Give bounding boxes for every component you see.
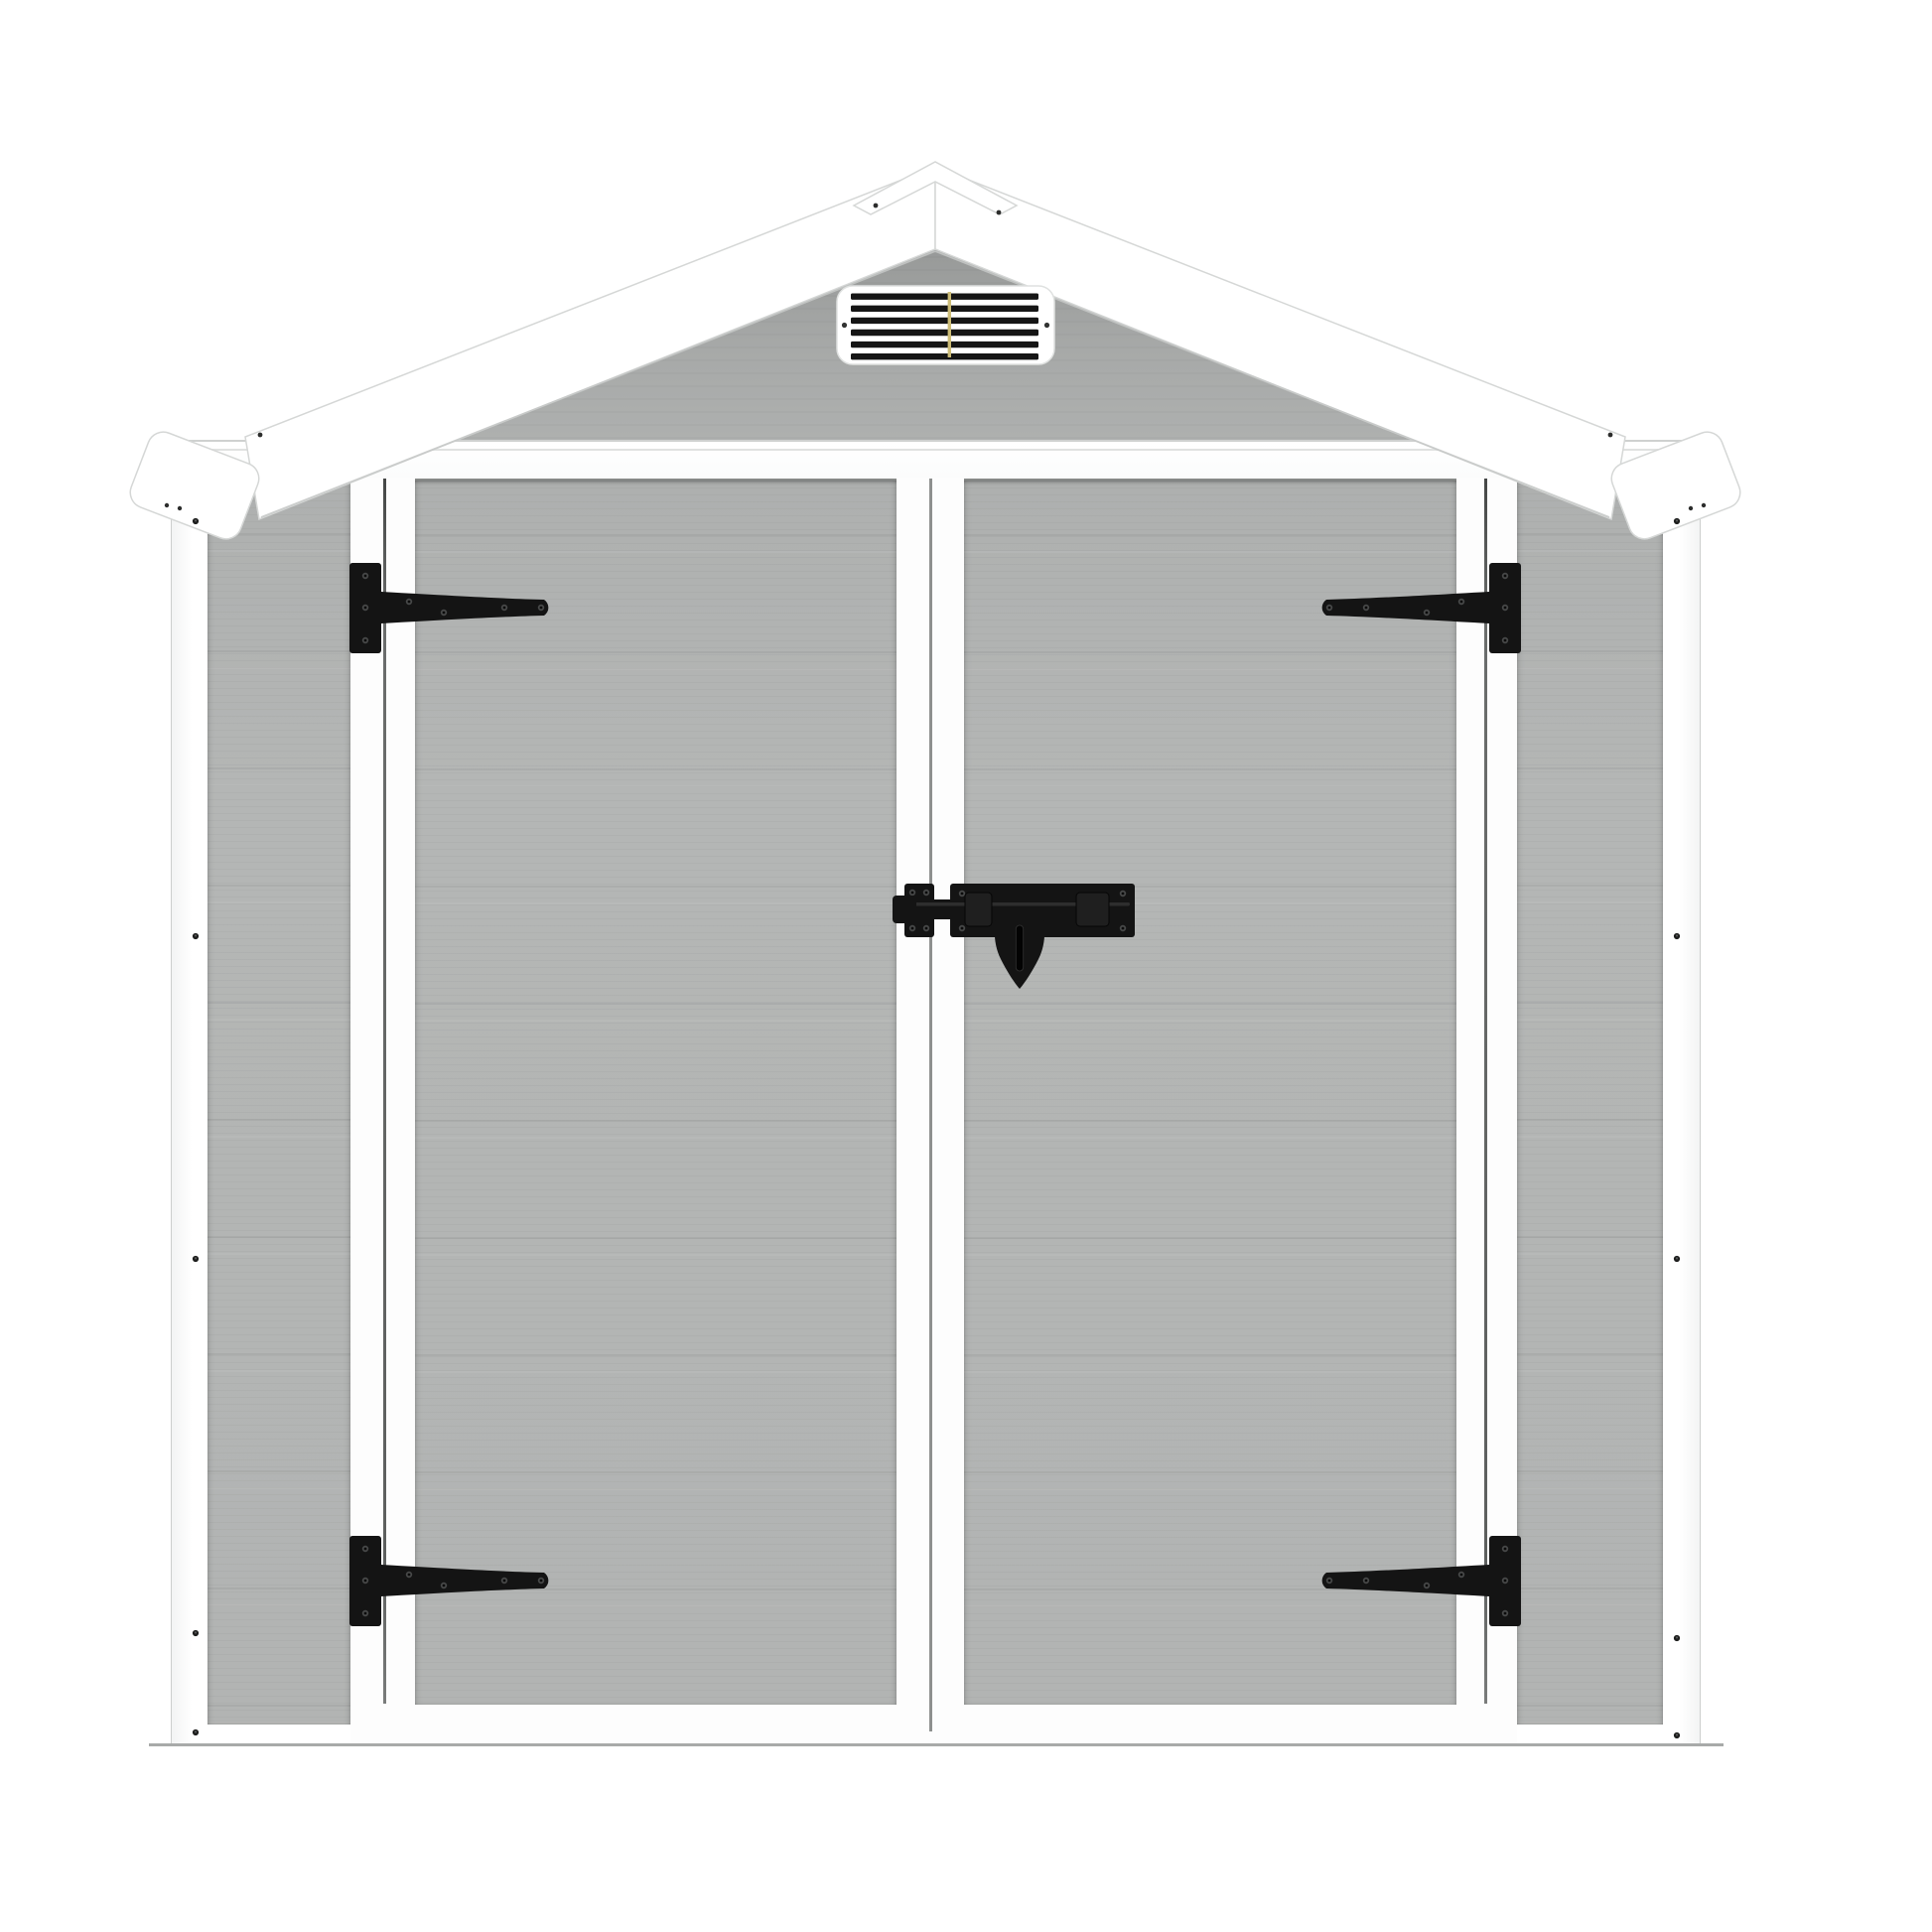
vent-louver xyxy=(851,306,1038,312)
wall-header-band xyxy=(167,440,1702,481)
double-door-bay xyxy=(350,478,1517,1745)
door-hinge-gap-right xyxy=(1484,479,1487,1704)
shed-product-photo xyxy=(0,0,1932,1932)
door-panel-right xyxy=(964,479,1456,1705)
ridge-cap xyxy=(854,162,1017,214)
vent-screw-left xyxy=(842,323,847,328)
vent-screw-right xyxy=(1044,323,1049,328)
vent-louver xyxy=(851,330,1038,336)
gable-vent xyxy=(837,286,1054,364)
door-panel-left xyxy=(415,479,897,1705)
vent-louver xyxy=(851,353,1038,359)
vent-louvers xyxy=(851,294,1038,360)
corner-trim-left xyxy=(171,478,208,1745)
door-center-seam xyxy=(929,479,932,1731)
side-wall-panel-right xyxy=(1517,478,1663,1725)
corner-trim-right xyxy=(1663,478,1701,1745)
door-hinge-gap-left xyxy=(383,479,386,1704)
vent-louver xyxy=(851,342,1038,347)
vent-accent-line xyxy=(948,292,951,357)
vent-louver xyxy=(851,294,1038,300)
base-floor-line xyxy=(149,1743,1724,1746)
side-wall-panel-left xyxy=(207,478,350,1725)
vent-louver xyxy=(851,318,1038,324)
